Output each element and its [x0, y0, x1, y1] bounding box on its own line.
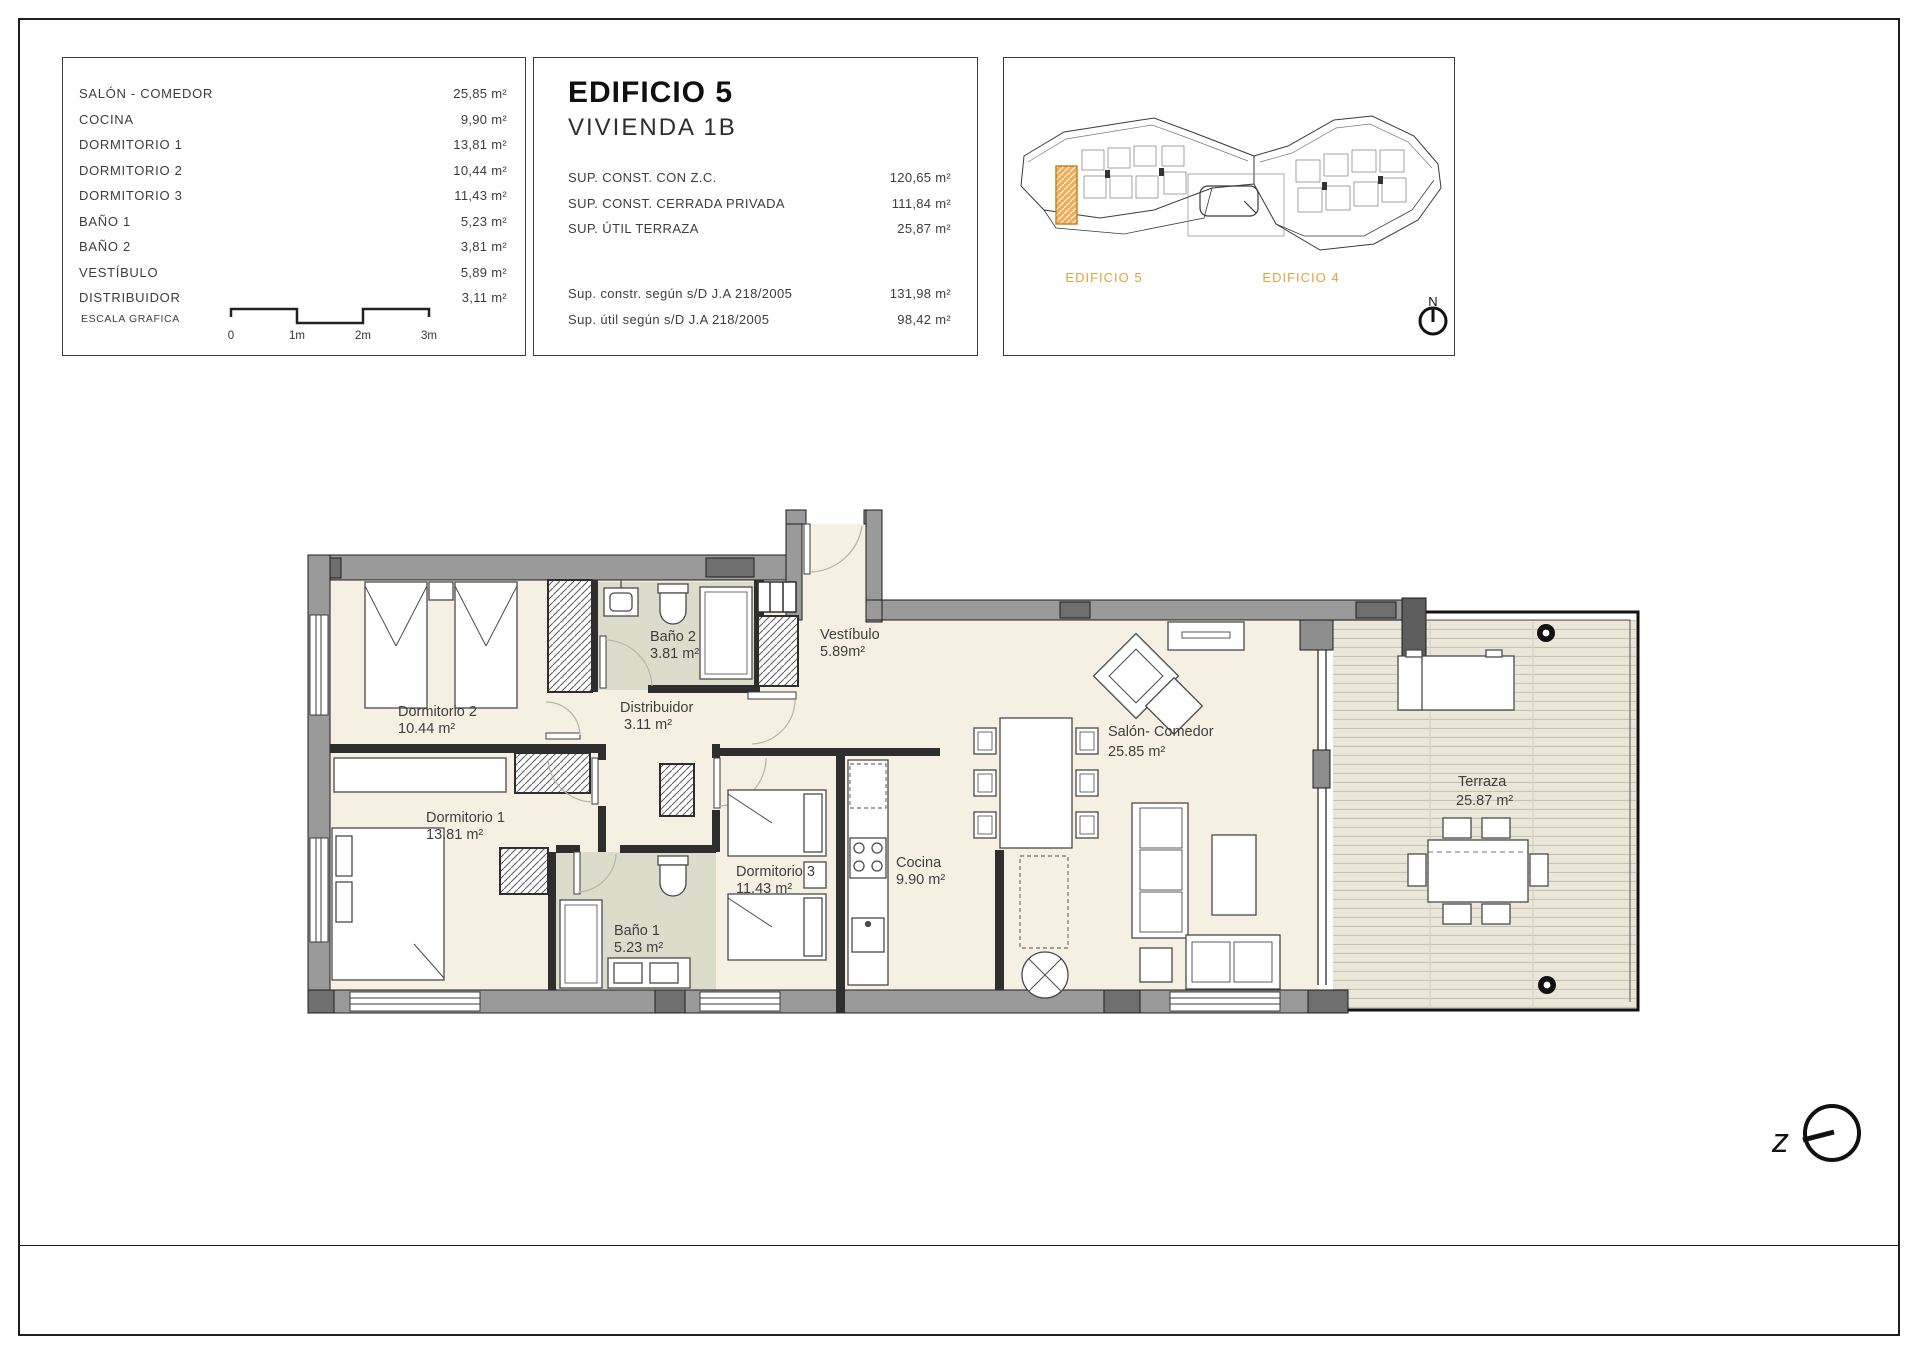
surface-rows: SUP. CONST. CON Z.C.120,65 m² SUP. CONST…	[568, 170, 951, 247]
site-key-panel: EDIFICIO 5 EDIFICIO 4 N	[1003, 57, 1455, 356]
north-compass	[1420, 308, 1446, 334]
label-dormitorio2: Dormitorio 2	[398, 704, 477, 720]
area-row: SALÓN - COMEDOR25,85 m²	[79, 86, 507, 101]
coffee-table	[1212, 835, 1256, 915]
label-dormitorio1: Dormitorio 1	[426, 810, 505, 826]
legal-surface-rows: Sup. constr. según s/D J.A 218/2005131,9…	[568, 286, 951, 337]
wardrobe-vestibulo	[758, 616, 798, 686]
bed-dorm3-b	[728, 894, 826, 960]
entry-door-leaf	[804, 524, 810, 574]
surface-row: SUP. ÚTIL TERRAZA25,87 m²	[568, 221, 951, 236]
svg-text:1m: 1m	[289, 330, 305, 342]
bed-dorm1	[332, 828, 444, 980]
side-table	[1140, 948, 1172, 982]
label-terraza: Terraza	[1458, 774, 1507, 790]
svg-text:3m: 3m	[421, 330, 437, 342]
hob	[850, 838, 886, 878]
sun-lounger	[1398, 650, 1514, 710]
svg-text:3.11 m²: 3.11 m²	[624, 717, 672, 733]
unit-info-panel: EDIFICIO 5 VIVIENDA 1B SUP. CONST. CON Z…	[533, 57, 978, 356]
site-label-edificio4: EDIFICIO 4	[1262, 270, 1339, 285]
scale-label: ESCALA GRAFICA	[81, 313, 180, 325]
svg-text:25.85 m²: 25.85 m²	[1108, 744, 1165, 760]
kitchen-sink	[852, 918, 884, 952]
svg-text:9.90 m²: 9.90 m²	[896, 872, 945, 888]
svg-text:13.81 m²: 13.81 m²	[426, 827, 483, 843]
svg-text:10.44 m²: 10.44 m²	[398, 721, 455, 737]
orientation-compass: z	[1771, 1106, 1859, 1160]
label-dormitorio3: Dormitorio 3	[736, 864, 815, 880]
wardrobe-bano1-corner	[500, 848, 548, 894]
building-4-outline	[1254, 116, 1441, 250]
label-distribuidor: Distribuidor	[620, 700, 693, 716]
site-plan	[1004, 58, 1453, 354]
area-row: DORMITORIO 311,43 m²	[79, 188, 507, 203]
surface-row: SUP. CONST. CERRADA PRIVADA111,84 m²	[568, 196, 951, 211]
site-label-edificio5: EDIFICIO 5	[1065, 270, 1142, 285]
graphic-scale: ESCALA GRAFICA 0 1m 2m 3m	[79, 301, 507, 345]
tv-console	[1168, 622, 1244, 650]
wardrobe-hall	[660, 764, 694, 816]
sofa-vertical	[1132, 803, 1188, 938]
area-row: COCINA9,90 m²	[79, 112, 507, 127]
svg-text:11.43 m²: 11.43 m²	[736, 881, 792, 897]
bed-dorm2-b	[455, 582, 517, 708]
svg-text:25.87 m²: 25.87 m²	[1456, 793, 1513, 809]
orientation-letter: z	[1771, 1122, 1789, 1160]
shower-bano1	[560, 900, 602, 988]
area-row: DORMITORIO 113,81 m²	[79, 137, 507, 152]
floorplan-sheet: { "colors": { "accent_orange": "#E2A23C"…	[0, 0, 1920, 1356]
vanity-bano1	[608, 958, 690, 988]
scale-bar: 0 1m 2m 3m	[209, 301, 499, 345]
nightstand-dorm2	[429, 582, 453, 600]
room-areas-list: SALÓN - COMEDOR25,85 m² COCINA9,90 m² DO…	[79, 86, 507, 316]
highlighted-unit	[1056, 166, 1077, 224]
round-table	[1022, 952, 1068, 998]
sofa-horizontal	[1186, 935, 1280, 989]
north-letter: N	[1428, 294, 1437, 309]
surface-row: Sup. constr. según s/D J.A 218/2005131,9…	[568, 286, 951, 301]
dining-table	[974, 718, 1098, 848]
surface-row: Sup. útil según s/D J.A 218/200598,42 m²	[568, 312, 951, 327]
svg-text:5.23 m²: 5.23 m²	[614, 940, 663, 956]
room-areas-panel: SALÓN - COMEDOR25,85 m² COCINA9,90 m² DO…	[62, 57, 526, 356]
area-row: BAÑO 15,23 m²	[79, 214, 507, 229]
dresser-dorm1	[334, 758, 506, 792]
area-row: DORMITORIO 210,44 m²	[79, 163, 507, 178]
bed-dorm3-a	[728, 790, 826, 856]
area-row: BAÑO 23,81 m²	[79, 239, 507, 254]
building-title: EDIFICIO 5	[568, 76, 733, 110]
bed-dorm2-a	[365, 582, 427, 708]
label-cocina: Cocina	[896, 855, 942, 871]
svg-text:5.89m²: 5.89m²	[820, 644, 865, 660]
fridge	[850, 764, 886, 808]
kitchen-counter	[848, 760, 888, 985]
unit-subtitle: VIVIENDA 1B	[568, 114, 737, 142]
toilet-bano1	[658, 856, 688, 896]
wardrobe-dorm1	[515, 753, 590, 793]
svg-text:0: 0	[228, 330, 234, 342]
surface-row: SUP. CONST. CON Z.C.120,65 m²	[568, 170, 951, 185]
toilet-bano2	[658, 584, 688, 624]
cabinet-vestibulo	[758, 582, 796, 612]
wardrobe-dorm2	[548, 580, 592, 692]
label-bano1: Baño 1	[614, 923, 660, 939]
svg-text:2m: 2m	[355, 330, 371, 342]
svg-text:3.81 m²: 3.81 m²	[650, 646, 699, 662]
label-salon: Salón- Comedor	[1108, 724, 1214, 740]
shower-bano2	[700, 587, 752, 679]
label-bano2: Baño 2	[650, 629, 696, 645]
label-vestibulo: Vestíbulo	[820, 627, 880, 643]
area-row: VESTÍBULO5,89 m²	[79, 265, 507, 280]
